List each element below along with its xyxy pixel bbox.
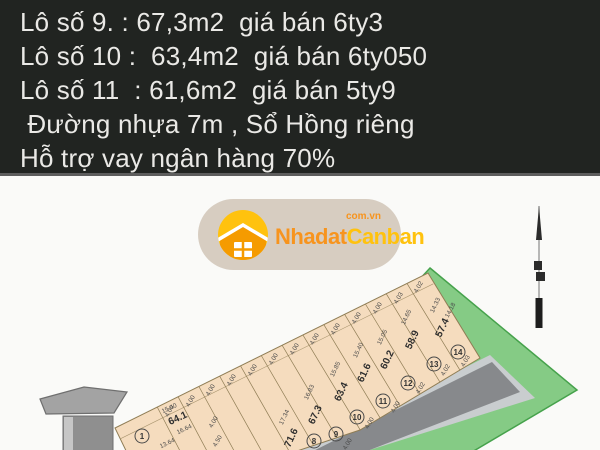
- screenshot-root: Lô số 9. : 67,3m2 giá bán 6ty3 Lô số 10 …: [0, 0, 600, 450]
- listing-line-lot10: Lô số 10 : 63,4m2 giá bán 6ty050: [20, 39, 600, 73]
- listing-line-road: Đường nhựa 7m , Sổ Hồng riêng: [20, 107, 600, 141]
- lot9-number: 9: [334, 430, 339, 439]
- tower-structure: [40, 387, 127, 450]
- lot10-number: 10: [353, 413, 362, 422]
- lot1-number: 1: [140, 432, 145, 441]
- lot11-number: 11: [379, 397, 388, 406]
- survey-pole-icon: [534, 206, 545, 328]
- lot8-number: 8: [312, 437, 317, 446]
- house-sun-icon: [217, 209, 269, 261]
- watermark-logo: NhadatCanban com.vn: [198, 199, 401, 270]
- tower-column-highlight: [64, 417, 73, 450]
- brand-wordmark: NhadatCanban: [275, 224, 424, 250]
- listing-line-lot11: Lô số 11 : 61,6m2 giá bán 5ty9: [20, 73, 600, 107]
- brand-part-2: Canban: [347, 224, 425, 249]
- listing-line-lot9: Lô số 9. : 67,3m2 giá bán 6ty3: [20, 5, 600, 39]
- lot12-number: 12: [404, 379, 413, 388]
- listing-line-loan: Hỗ trợ vay ngân hàng 70%: [20, 141, 600, 175]
- brand-part-1: Nhadat: [275, 224, 347, 249]
- listing-text-panel: Lô số 9. : 67,3m2 giá bán 6ty3 Lô số 10 …: [0, 0, 600, 176]
- tower-roof: [40, 387, 127, 414]
- lot13-number: 13: [430, 360, 439, 369]
- lot14-number: 14: [454, 348, 463, 357]
- brand-domain: com.vn: [346, 211, 381, 222]
